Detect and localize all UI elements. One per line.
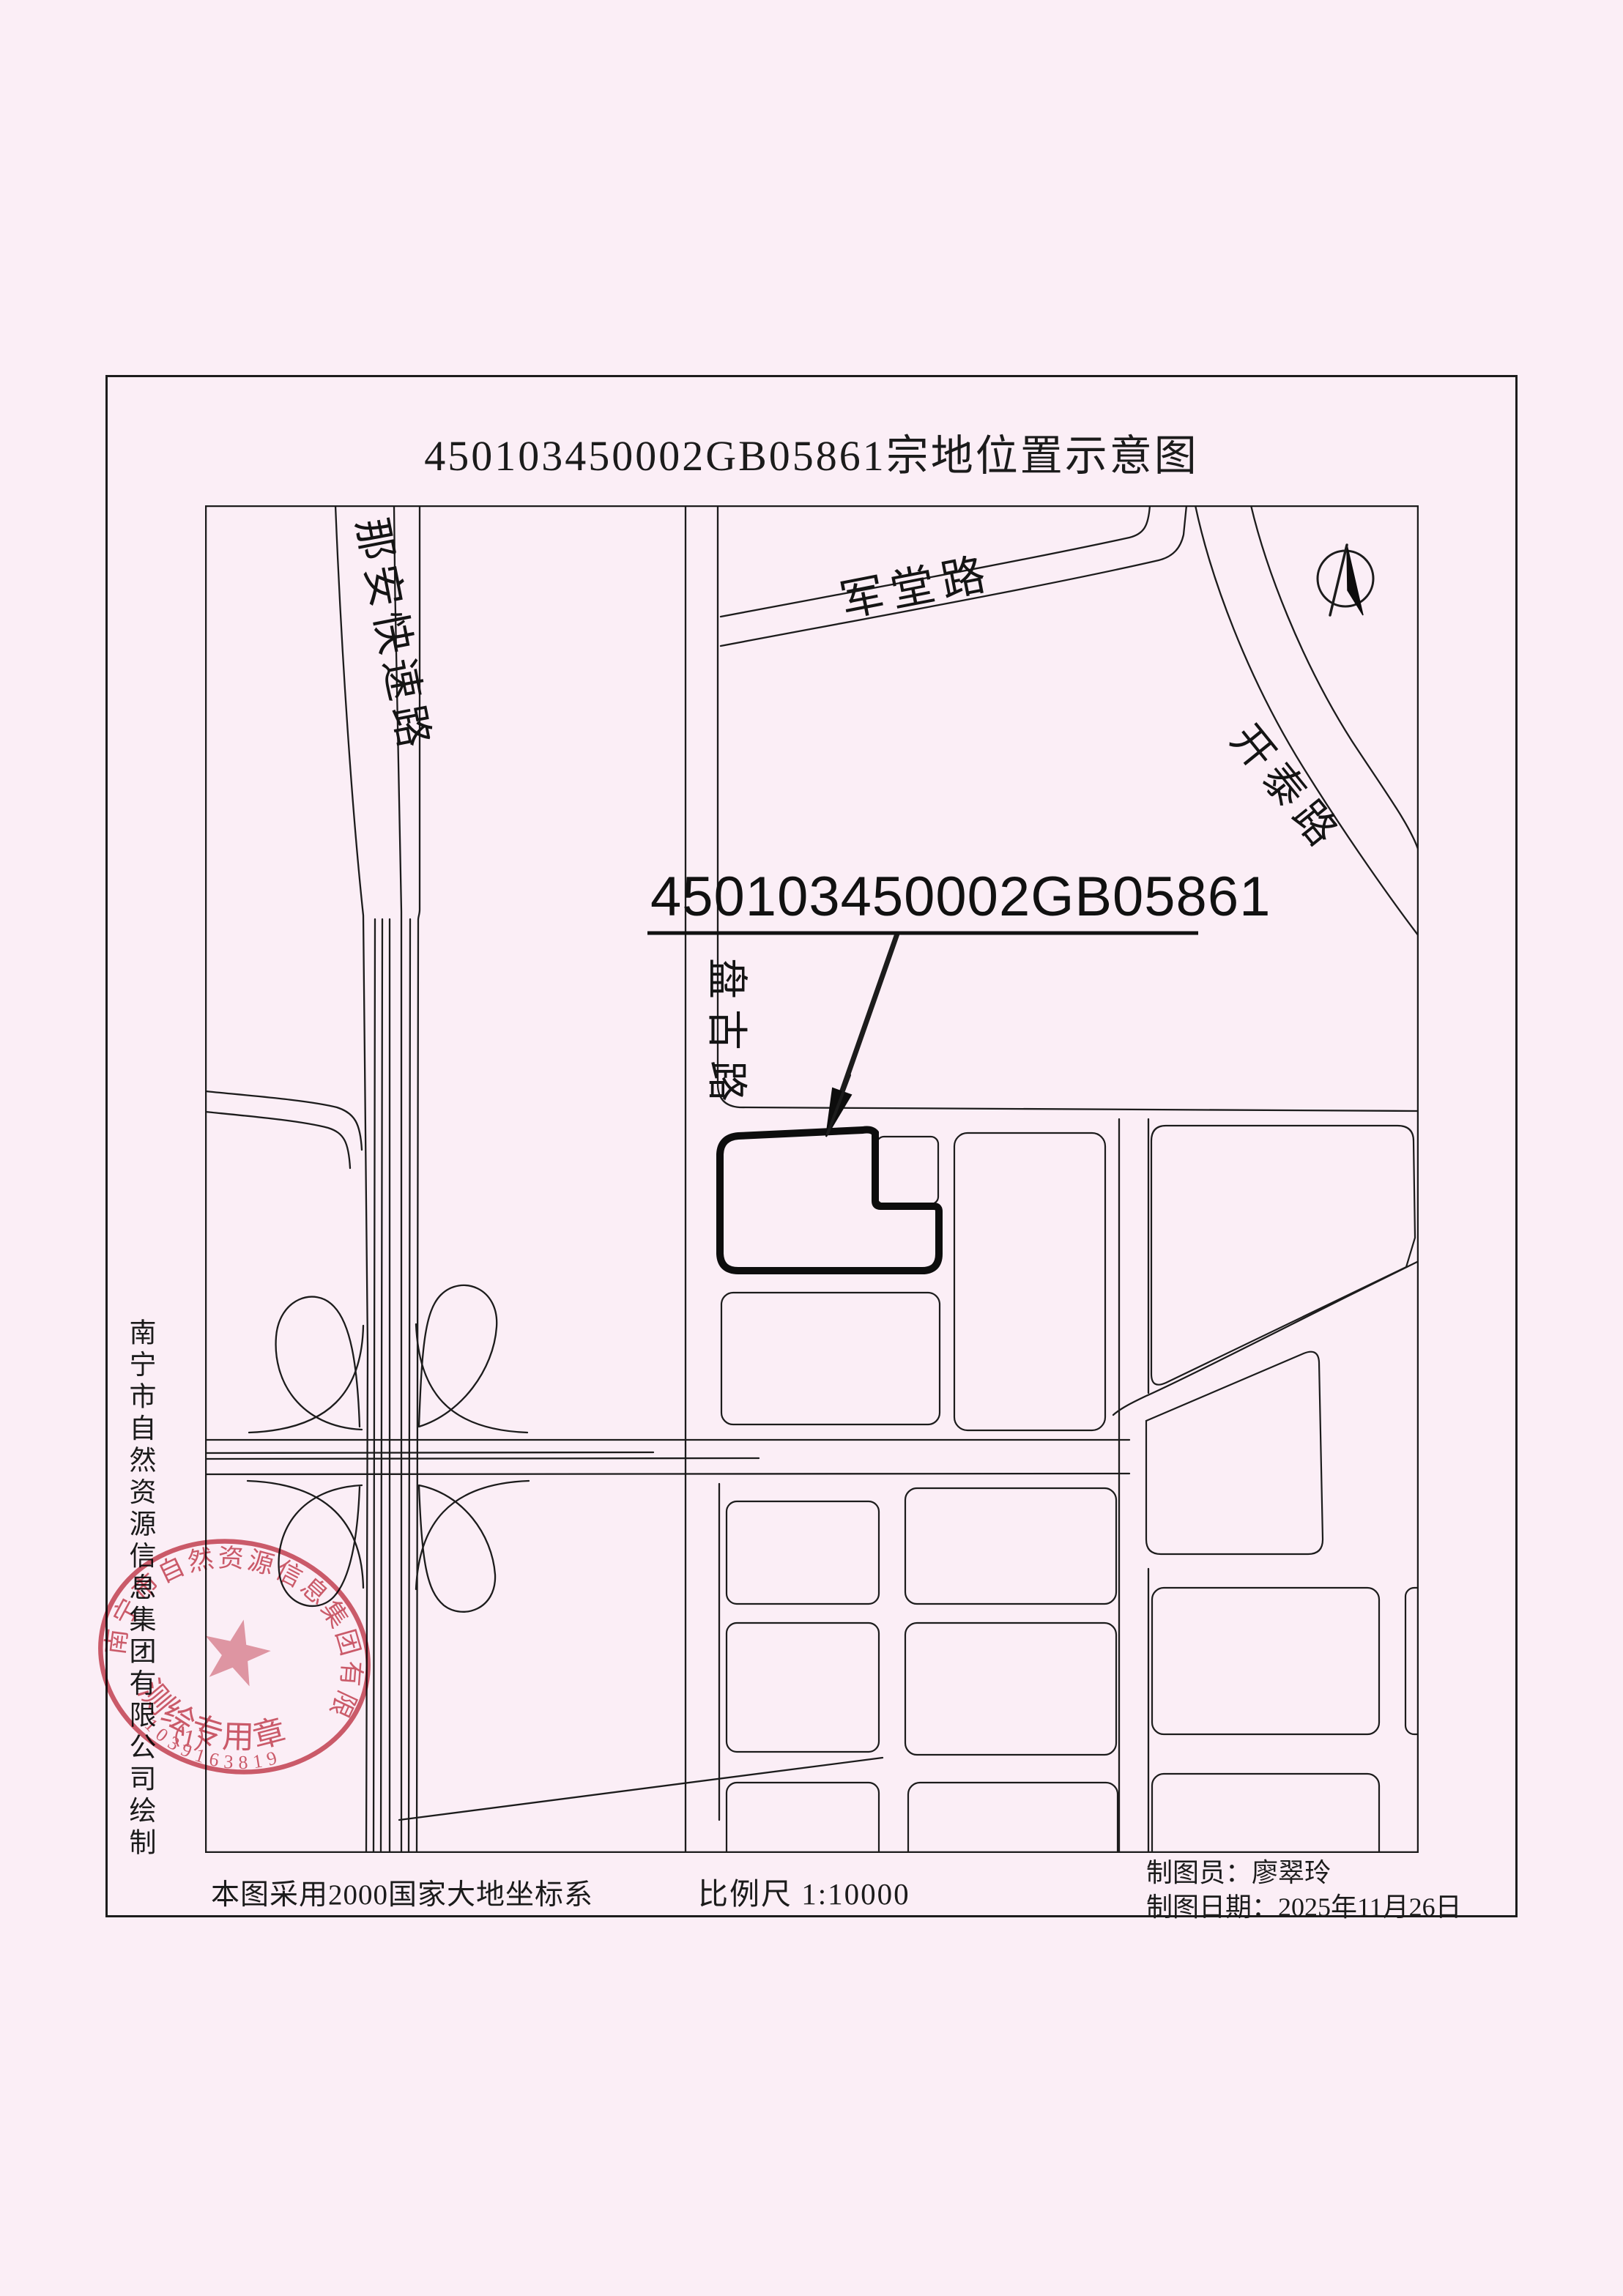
parcel-pointer-arrow [826,934,897,1137]
road-label-expressway: 那安快速路 [347,514,438,757]
north-arrow-icon [1318,545,1373,615]
page-title: 450103450002GB05861宗地位置示意图 [105,421,1518,483]
date-label: 制图日期： [1146,1892,1278,1922]
road-southwest-diagonal [399,1758,883,1820]
credits-block: 制图员：廖翠玲 制图日期：2025年11月26日 [1146,1856,1462,1925]
cartographer-label: 制图员： [1146,1858,1252,1887]
road-label-pangu: 盘古路 [703,958,749,1112]
cartographer-line: 制图员：廖翠玲 [1146,1856,1462,1890]
parcel-id-label: 450103450002GB05861 [650,866,1271,928]
seal-star-icon [197,1612,277,1689]
road-west-connector [205,1091,362,1168]
road-vertical-east [1119,1119,1148,1853]
official-seal: 南宁市自然资源信息集团有限公司 测绘专用章 （1） 1039163819 [91,1535,378,1783]
road-label-juntang: 军堂路 [836,549,997,626]
date-value: 2025年11月26日 [1278,1892,1462,1922]
parcel-location-map: 那安快速路 军堂路 开泰路 盘古路 450103450002GB05861 [205,505,1419,1853]
road-arterial [205,1440,1129,1474]
block-below-parcel [721,1293,940,1424]
parcel-outline [720,1130,939,1271]
scale-label: 比例尺 1:10000 [698,1869,910,1913]
map-canvas: 那安快速路 军堂路 开泰路 盘古路 450103450002GB05861 [205,505,1419,1853]
city-blocks [721,1126,1419,1853]
road-east-diagonal [1113,1261,1419,1415]
block-right-of-parcel [954,1133,1105,1430]
datum-note: 本图采用2000国家大地坐标系 [211,1872,593,1913]
road-pangu [686,505,1419,1853]
block-notch [877,1137,938,1204]
date-line: 制图日期：2025年11月26日 [1146,1890,1462,1925]
cartographer-name: 廖翠玲 [1252,1858,1331,1887]
